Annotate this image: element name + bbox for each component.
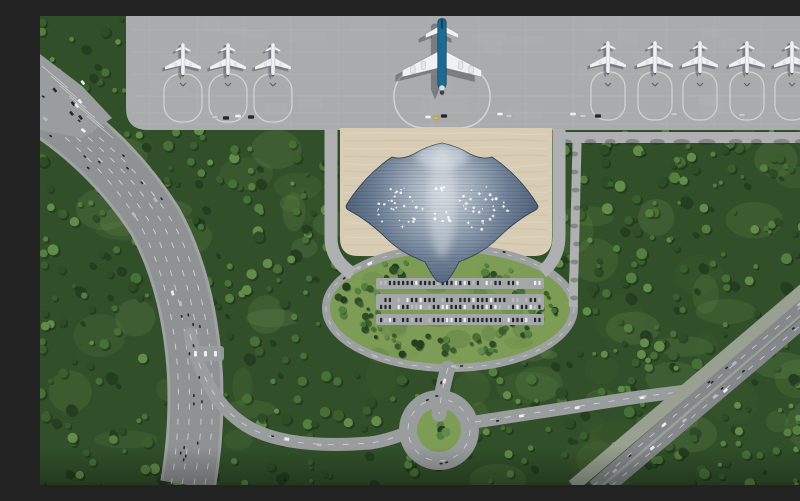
service-vehicle (595, 114, 601, 117)
service-vehicle (506, 114, 512, 117)
service-vehicle (570, 112, 576, 115)
vignette (40, 446, 800, 485)
vehicle (317, 443, 322, 446)
service-vehicle (235, 114, 241, 117)
service-vehicle (248, 115, 254, 118)
service-vehicle (223, 116, 229, 119)
service-vehicle (739, 113, 745, 116)
service-vehicle (671, 112, 677, 115)
vehicle (435, 395, 438, 397)
service-vehicle (580, 114, 586, 117)
aerial-airport-render: Aerial rendering of a manta-ray-shaped a… (40, 16, 800, 485)
service-vehicle (497, 112, 503, 115)
vehicle (460, 365, 463, 367)
service-vehicle (212, 115, 218, 118)
vehicle (198, 376, 200, 379)
vehicle (197, 441, 199, 444)
vehicle (193, 394, 195, 397)
vehicle (451, 365, 456, 368)
service-vehicle (433, 116, 439, 119)
vehicle (193, 402, 195, 405)
vehicle (201, 400, 203, 403)
scene-canvas (40, 16, 800, 485)
service-vehicle (441, 114, 447, 117)
service-vehicle (425, 115, 431, 118)
